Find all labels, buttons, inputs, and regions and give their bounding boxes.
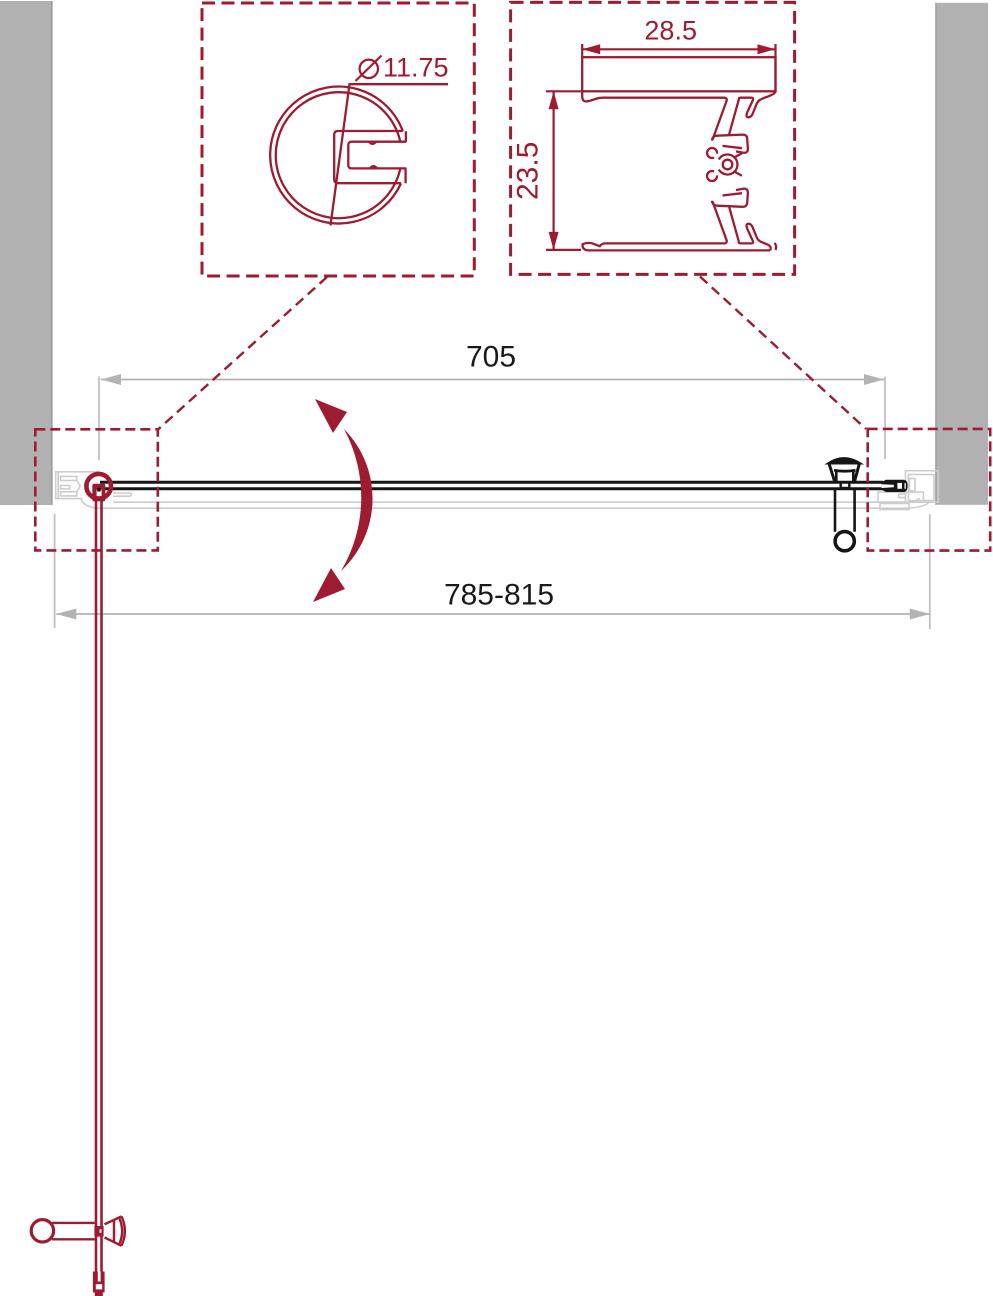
- svg-text:23.5: 23.5: [512, 142, 545, 200]
- svg-text:11.75: 11.75: [383, 52, 449, 82]
- svg-text:28.5: 28.5: [644, 15, 697, 45]
- svg-text:705: 705: [466, 341, 516, 374]
- svg-text:785-815: 785-815: [444, 579, 554, 612]
